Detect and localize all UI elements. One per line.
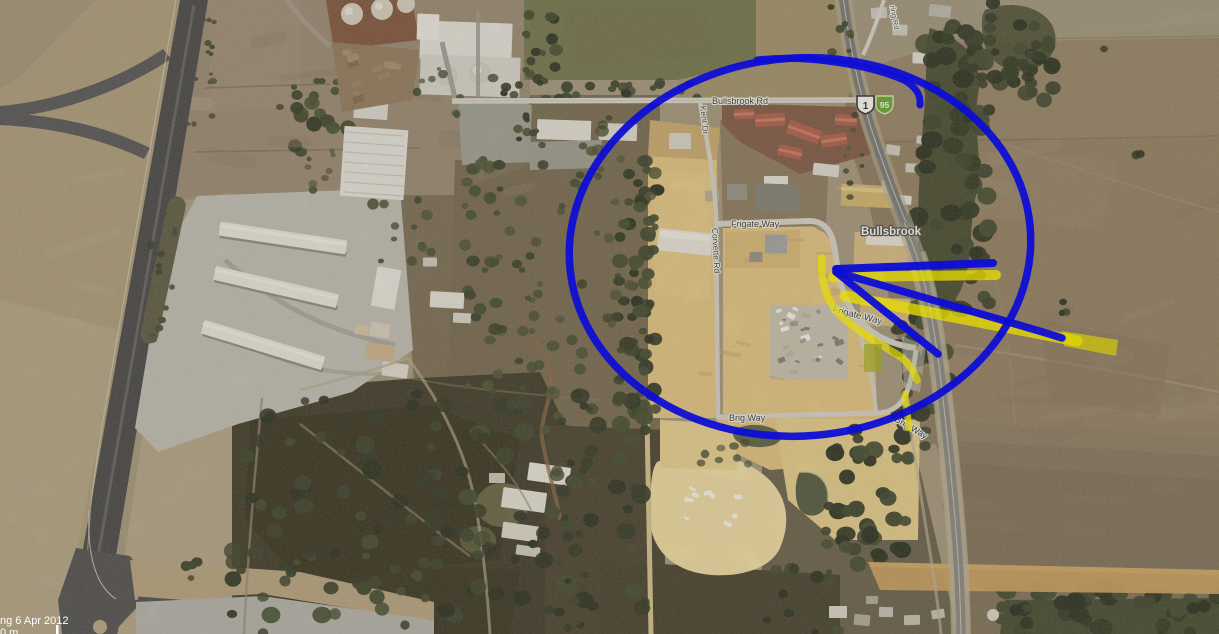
- svg-text:0 m: 0 m: [0, 627, 18, 634]
